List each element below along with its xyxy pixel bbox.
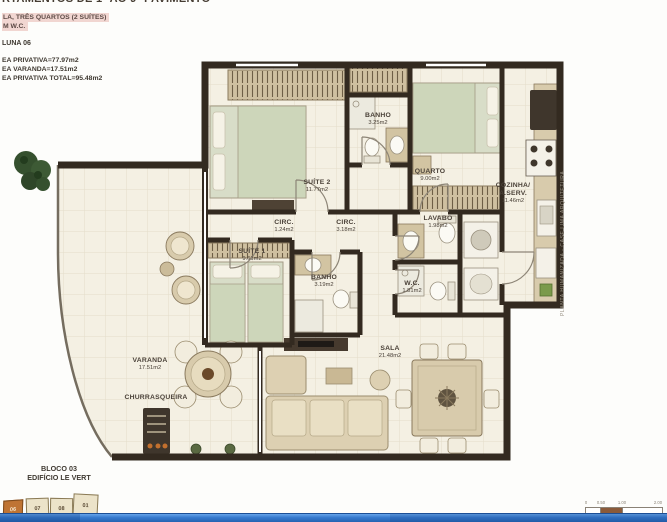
- scale-tick-label: 2.00: [654, 500, 662, 505]
- area-line: EA PRIVATIVA=77.97m2: [2, 56, 210, 65]
- floorplan-page: RTAMENTOS DE 1º AO 9º PAVIMENTO LA, TRÊS…: [0, 0, 667, 522]
- barbecue-grill-icon: [143, 408, 170, 454]
- unit-type-highlight-line1: LA, TRÊS QUARTOS (2 SUÍTES): [2, 13, 109, 22]
- single-bed-icon: [413, 83, 502, 211]
- edificio-label: EDIFÍCIO LE VERT: [0, 473, 118, 482]
- column-label: LUNA 06: [2, 40, 210, 47]
- building-block-label: BLOCO 03 EDIFÍCIO LE VERT: [0, 464, 118, 482]
- scale-tick-label: 0: [585, 500, 587, 505]
- scale-tick-label: 1.00: [618, 500, 626, 505]
- header-block: RTAMENTOS DE 1º AO 9º PAVIMENTO LA, TRÊS…: [2, 0, 210, 83]
- page-title-clipped: RTAMENTOS DE 1º AO 9º PAVIMENTO: [2, 0, 210, 6]
- scale-tick-label: 0.50: [597, 500, 605, 505]
- twin-beds-icon: [208, 243, 290, 342]
- area-summary: EA PRIVATIVA=77.97m2 EA VARANDA=17.51m2 …: [2, 56, 210, 83]
- double-bed-icon: [210, 106, 306, 211]
- unit-type-highlight-line2: M W.C.: [2, 22, 28, 31]
- area-line: EA VARANDA=17.51m2: [2, 65, 210, 74]
- architect-watermark: PLANTA HUMANIZADA - CASE LIMA ARQUITETUR…: [560, 146, 566, 316]
- area-line: EA PRIVATIVA TOTAL=95.48m2: [2, 74, 210, 83]
- bloco-label: BLOCO 03: [0, 464, 118, 473]
- horizontal-scrollbar[interactable]: [0, 513, 667, 522]
- tree-icon: [14, 151, 51, 191]
